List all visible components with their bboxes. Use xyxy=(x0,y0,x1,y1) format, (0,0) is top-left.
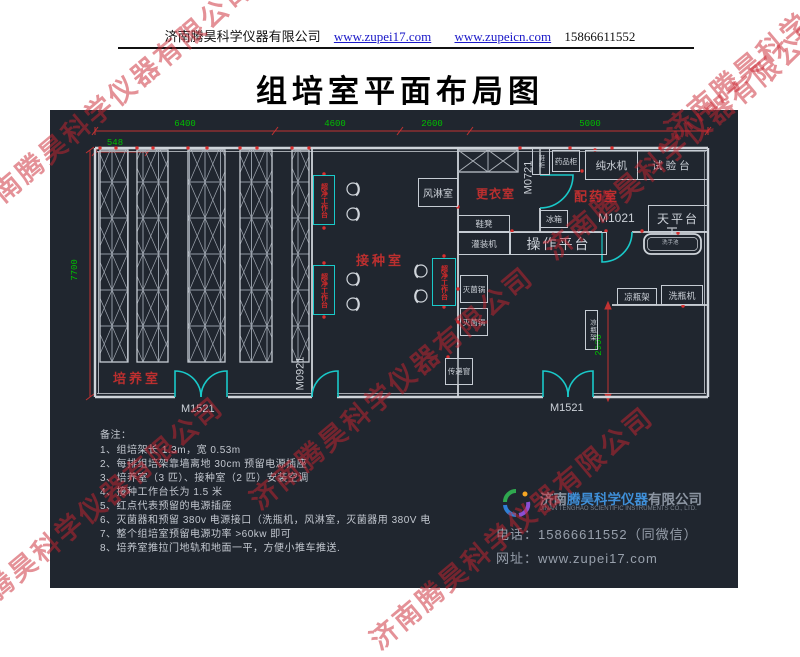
filling-machine-box: 灌装机 xyxy=(458,232,510,255)
sterilizer-box-2: 灭菌锅 xyxy=(460,308,488,336)
door-label-m0921: M0921 xyxy=(295,357,306,391)
note-line-4: 4、接种工作台长为 1.5 米 xyxy=(100,483,223,498)
door-label-m1521-left: M1521 xyxy=(181,404,215,415)
header-link-zupei17[interactable]: www.zupei17.com xyxy=(334,29,431,44)
air-shower-box: 风淋室 xyxy=(418,178,458,207)
brand-logo-icon xyxy=(500,486,534,520)
dim-6400: 6400 xyxy=(155,119,215,129)
prep-bench-box: 纯水机 试验台 xyxy=(585,150,708,180)
bottle-washer-box: 洗瓶机 xyxy=(661,285,703,305)
header-link-zupeicn[interactable]: www.zupeicn.com xyxy=(454,29,551,44)
note-line-5: 5、红点代表预留的电源插座 xyxy=(100,497,232,512)
dim-5000: 5000 xyxy=(555,119,625,129)
note-line-8: 8、培养室推拉门地轨和地面一平，方便小推车推送. xyxy=(100,539,340,554)
clean-bench-1: 超净工作台 xyxy=(313,175,335,225)
page-header: 济南腾昊科学仪器有限公司 www.zupei17.com www.zupeicn… xyxy=(0,26,800,45)
floorplan-canvas: 6400 4600 2600 5000 548 7700 2900 培养室 接种… xyxy=(50,110,738,588)
brand-prefix: 济南 xyxy=(540,492,567,507)
bottle-rack-box-v: 凉瓶架 xyxy=(585,310,598,350)
brand-company-name-en: JINAN TENGHAO SCIENTIFIC INSTRUMENTS CO.… xyxy=(540,506,697,512)
notes-title: 备注： xyxy=(100,426,132,441)
dim-4600: 4600 xyxy=(305,119,365,129)
hand-sink-label: 洗手池 xyxy=(662,241,679,247)
balance-table-box: 天平台 xyxy=(648,205,708,232)
room-label-dispensing: 配药室 xyxy=(574,186,619,205)
water-purifier-label: 纯水机 xyxy=(586,151,638,179)
culture-racks xyxy=(100,150,309,362)
brand-website: 网址：www.zupei17.com xyxy=(496,548,658,567)
brand-suffix: 有限公司 xyxy=(648,492,702,507)
medicine-cabinet-box: 药品柜 xyxy=(552,150,580,172)
test-bench-label: 试验台 xyxy=(638,158,707,173)
note-line-6: 6、灭菌器和预留 380v 电源接口（洗瓶机，风淋室，灭菌器用 380V 电 xyxy=(100,511,431,526)
operation-platform-box: 操作平台 xyxy=(510,232,607,255)
note-line-3: 3、培养室（3 匹）、接种室（2 匹）安装空调 xyxy=(100,469,309,484)
sterilizer-box-1: 灭菌锅 xyxy=(460,275,488,303)
brand-name: 腾昊科学仪器 xyxy=(567,492,648,507)
page-title: 组培室平面布局图 xyxy=(0,66,800,111)
fridge-box: 冰箱 xyxy=(540,210,568,228)
header-divider xyxy=(118,47,694,49)
room-label-changing: 更衣室 xyxy=(476,185,515,202)
brand-company-name: 济南腾昊科学仪器有限公司 xyxy=(540,488,702,508)
room-label-inoculation: 接种室 xyxy=(356,250,404,269)
pass-window-box: 传递窗 xyxy=(445,358,473,385)
bottle-rack-box-h: 凉瓶架 xyxy=(617,288,657,305)
door-label-m1521-right: M1521 xyxy=(550,403,584,414)
note-line-7: 7、整个组培室预留电源功率 >60kw 即可 xyxy=(100,525,291,540)
clean-bench-3-label: 超净工作台 xyxy=(441,265,448,300)
shoe-stool-box: 鞋凳 xyxy=(458,215,510,232)
note-line-1: 1、组培架长 1.3m，宽 0.53m xyxy=(100,441,241,456)
header-phone: 15866611552 xyxy=(564,29,635,44)
door-label-m1021: M1021 xyxy=(598,212,635,224)
clean-bench-3: 超净工作台 xyxy=(432,258,456,306)
clean-bench-2-label: 超净工作台 xyxy=(321,273,328,308)
brand-phone: 电话：15866611552（同微信） xyxy=(496,524,698,543)
room-label-culture: 培养室 xyxy=(113,368,161,387)
shoe-cabinet-box: 鞋柜 xyxy=(532,148,550,175)
dim-2600: 2600 xyxy=(402,119,462,129)
note-line-2: 2、每排组培架靠墙离地 30cm 预留电源插座 xyxy=(100,455,307,470)
dim-7700: 7700 xyxy=(70,259,80,281)
header-company: 济南腾昊科学仪器有限公司 xyxy=(165,29,321,44)
clean-bench-2: 超净工作台 xyxy=(313,265,335,315)
dim-548: 548 xyxy=(95,138,135,148)
clean-bench-1-label: 超净工作台 xyxy=(321,183,328,218)
stools xyxy=(347,183,427,311)
changing-room-locker xyxy=(458,150,518,172)
